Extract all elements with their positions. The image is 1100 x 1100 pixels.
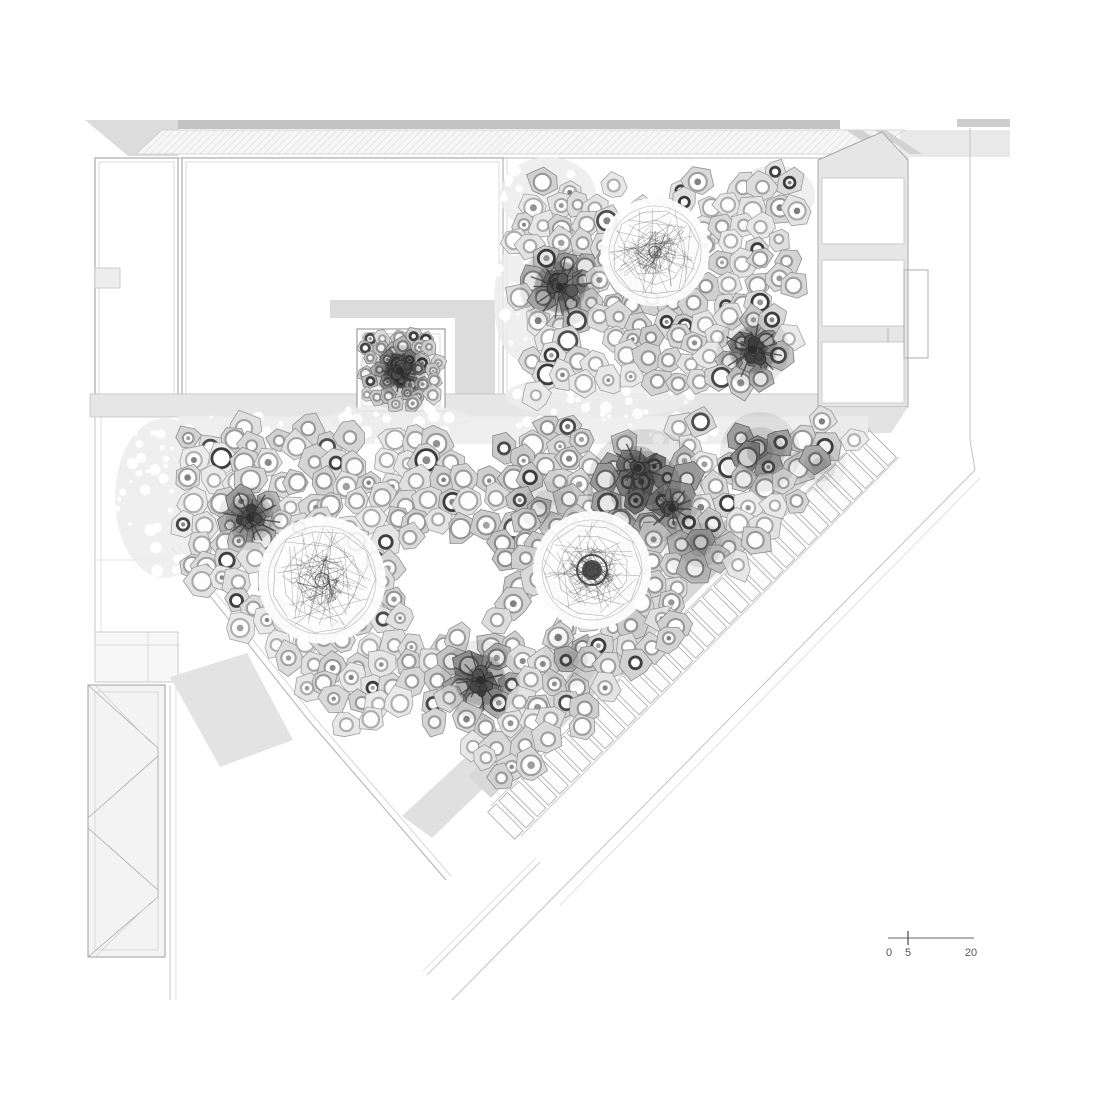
canopy-oculus — [363, 711, 379, 727]
dapple-dot — [128, 523, 132, 527]
canopy-oculus — [403, 531, 416, 544]
canopy-oculus — [709, 479, 723, 493]
tree-pod — [479, 684, 487, 692]
tree-pod — [755, 352, 763, 360]
canopy-oculus — [732, 559, 744, 571]
dapple-dot — [127, 458, 138, 469]
oculus-dot — [558, 240, 564, 246]
dapple-dot — [382, 414, 391, 423]
canopy-oculus — [770, 501, 780, 511]
dapple-dot — [280, 423, 284, 427]
tree-pod — [404, 362, 411, 369]
dapple-dot — [567, 170, 576, 179]
canopy-oculus — [340, 718, 353, 731]
canopy-oculus — [722, 277, 736, 291]
tree-pod — [247, 504, 256, 513]
tree-pod — [557, 273, 568, 284]
dapple-dot — [624, 414, 628, 418]
tree-trunk — [246, 514, 254, 522]
oculus-dot — [579, 437, 584, 442]
dapple-dot — [500, 194, 508, 202]
dapple-dot — [516, 422, 522, 428]
canopy-oculus — [450, 630, 466, 646]
canopy-oculus — [220, 553, 235, 568]
oculus-dot — [371, 686, 375, 690]
oculus-dot — [379, 662, 384, 667]
canopy-oculus — [208, 474, 221, 487]
dapple-dot — [210, 416, 213, 419]
dapple-dot — [170, 489, 175, 494]
canopy-oculus — [289, 474, 305, 490]
dapple-dot — [159, 473, 169, 483]
oculus-dot — [422, 456, 430, 464]
canopy-oculus — [687, 296, 701, 310]
dapple-dot — [629, 424, 633, 428]
oculus-dot — [332, 697, 336, 701]
oculus-dot — [566, 456, 572, 462]
oculus-dot — [596, 643, 601, 648]
canopy-oculus — [429, 716, 441, 728]
dapple-dot — [263, 426, 272, 435]
canopy-oculus — [593, 310, 606, 323]
wing-room-3 — [822, 342, 904, 403]
canopy-oculus — [747, 532, 764, 549]
nest-swirl — [533, 511, 651, 629]
walkway-corner-line-2 — [423, 858, 536, 971]
dapple-dot — [684, 400, 688, 404]
canopy-oculus — [531, 390, 541, 400]
canopy-small-courtyard — [357, 327, 447, 411]
dapple-dot — [444, 412, 455, 423]
dapple-dot — [512, 389, 522, 399]
canopy-oculus — [459, 492, 477, 510]
wing-room-2 — [822, 260, 904, 326]
dapple-dot — [522, 416, 533, 427]
oculus-dot — [487, 478, 492, 483]
top-edge-bar-right — [957, 119, 1010, 127]
canopy-oculus — [541, 421, 554, 434]
canopy-oculus — [614, 312, 624, 322]
oculus-dot — [409, 645, 413, 649]
oculus-dot — [305, 686, 310, 691]
roof-building — [88, 685, 165, 957]
canopy-oculus — [672, 377, 685, 390]
interior-wall-l-side — [455, 318, 495, 402]
dapple-dot — [516, 312, 519, 315]
canopy-oculus — [538, 220, 549, 231]
room-left-tab — [95, 268, 120, 288]
dapple-dot — [581, 403, 590, 412]
tree-pod — [245, 523, 251, 529]
canopy-oculus — [700, 280, 713, 293]
oculus-dot — [745, 505, 750, 510]
dapple-dot — [373, 411, 379, 417]
oculus-dot — [692, 340, 697, 345]
canopy-oculus — [771, 167, 780, 176]
canopy-oculus — [791, 495, 803, 507]
dapple-dot — [504, 174, 513, 183]
dapple-dot — [499, 309, 511, 321]
dapple-dot — [523, 337, 527, 341]
oculus-dot — [265, 459, 272, 466]
canopy-oculus — [379, 536, 392, 549]
dapple-dot — [502, 191, 506, 195]
canopy-oculus — [651, 375, 664, 388]
dapple-dot — [600, 402, 612, 414]
dapple-dot — [345, 406, 351, 412]
dapple-dot — [115, 506, 121, 512]
canopy-oculus — [724, 235, 737, 248]
scale-bar-label: 0 — [886, 947, 892, 959]
dapple-dot — [625, 397, 633, 405]
oculus-dot — [559, 203, 564, 208]
scale-bar-label: 20 — [965, 947, 977, 959]
oculus-dot — [508, 720, 514, 726]
oculus-dot — [483, 522, 490, 529]
oculus-dot — [391, 596, 397, 602]
oculus-dot — [186, 436, 190, 440]
canopy-oculus — [721, 198, 735, 212]
canopy-oculus — [380, 453, 394, 467]
dapple-dot — [643, 409, 648, 414]
canopy-shade-blob — [747, 439, 773, 465]
dapple-dot — [364, 428, 369, 433]
oculus-dot — [558, 445, 562, 449]
canopy-shade-blob — [561, 651, 579, 669]
oculus-dot — [366, 481, 371, 486]
canopy-oculus — [285, 502, 297, 514]
canopy-shade-blob — [688, 533, 712, 557]
canopy-oculus — [344, 431, 357, 444]
canopy-oculus — [786, 278, 802, 294]
canopy-oculus — [192, 572, 211, 591]
canopy-oculus — [316, 473, 331, 488]
oculus-dot — [757, 299, 763, 305]
dapple-dot — [586, 402, 589, 405]
oculus-dot — [520, 658, 526, 664]
canopy-oculus — [534, 174, 551, 191]
interior-wall-l-top — [330, 300, 495, 318]
canopy-oculus — [498, 443, 509, 454]
top-edge-bar — [178, 120, 840, 129]
tree-trunk — [634, 464, 642, 472]
oculus-dot — [667, 636, 672, 641]
canopy-oculus — [184, 494, 202, 512]
canopy-oculus — [601, 659, 616, 674]
dapple-dot — [149, 464, 160, 475]
dapple-dot — [130, 480, 133, 483]
canopy-oculus — [274, 436, 284, 446]
canopy-oculus — [479, 721, 493, 735]
site-plan-svg: III0520 — [0, 0, 1100, 1100]
room-main — [182, 158, 503, 402]
oculus-dot — [509, 765, 514, 770]
dapple-dot — [495, 265, 503, 273]
scale-bar: 0520 — [886, 931, 977, 959]
dapple-dot — [153, 430, 159, 436]
oculus-dot — [565, 424, 570, 429]
canopy-oculus — [774, 235, 783, 244]
dapple-dot — [508, 340, 513, 345]
nest-swirl — [601, 198, 710, 307]
walkway-corner-line — [427, 862, 540, 975]
oculus-dot — [720, 260, 724, 264]
oculus-dot — [433, 440, 440, 447]
oculus-dot — [603, 685, 608, 690]
nest-swirl — [258, 516, 385, 643]
canopy-oculus — [391, 695, 408, 712]
left-stair-block — [95, 632, 178, 682]
hatched-roof-band — [136, 130, 905, 154]
dapple-dot — [153, 523, 162, 532]
road-edge-right — [970, 128, 975, 470]
oculus-dot — [265, 618, 270, 623]
tree-trunk — [668, 504, 676, 512]
canopy-oculus — [608, 180, 620, 192]
dapple-dot — [151, 565, 163, 577]
dapple-dot — [622, 387, 631, 396]
canopy-oculus — [541, 732, 555, 746]
dapple-dot — [632, 409, 643, 420]
dapple-dot — [181, 554, 185, 558]
oculus-dot — [606, 378, 610, 382]
oculus-dot — [629, 375, 633, 379]
dapple-dot — [140, 485, 151, 496]
canopy-oculus — [386, 431, 405, 450]
oculus-dot — [441, 478, 446, 483]
tree-pod — [566, 285, 578, 297]
canopy-oculus — [406, 675, 419, 688]
canopy-oculus — [402, 655, 415, 668]
canopy-oculus — [693, 414, 709, 430]
canopy-oculus — [309, 456, 321, 468]
oculus-dot — [191, 457, 197, 463]
canopy-oculus — [363, 510, 380, 527]
wing-room-1 — [822, 178, 904, 244]
dapple-dot — [170, 447, 174, 451]
canopy-oculus — [520, 552, 532, 564]
canopy-oculus — [577, 237, 589, 249]
oculus-dot — [522, 223, 526, 227]
oculus-dot — [530, 204, 537, 211]
canopy-oculus — [721, 496, 735, 510]
canopy-oculus — [625, 619, 637, 631]
dapple-dot — [134, 431, 138, 435]
canopy-oculus — [496, 773, 507, 784]
oculus-dot — [181, 522, 185, 526]
oculus-dot — [237, 625, 244, 632]
canopy-oculus — [672, 421, 686, 435]
oculus-dot — [510, 600, 517, 607]
oculus-dot — [398, 616, 402, 620]
scale-bar-label: 5 — [905, 947, 911, 959]
canopy-oculus — [662, 354, 675, 367]
oculus-dot — [788, 181, 792, 185]
tree-trunk — [749, 346, 757, 354]
canopy-oculus — [642, 351, 656, 365]
oculus-dot — [527, 761, 535, 769]
canopy-oculus — [194, 537, 210, 553]
dapple-dot — [607, 415, 611, 419]
oculus-dot — [694, 179, 701, 186]
tree-pod — [757, 342, 764, 349]
canopy-oculus — [374, 489, 391, 506]
dapple-dot — [135, 440, 143, 448]
tree-trunk — [556, 283, 564, 291]
canopy-oculus — [573, 200, 583, 210]
dapple-dot — [550, 408, 557, 415]
canopy-oculus — [756, 181, 769, 194]
canopy-oculus — [491, 614, 504, 627]
canopy-shade-blob — [811, 457, 828, 474]
canopy-oculus — [578, 702, 592, 716]
canopy-oculus — [574, 718, 591, 735]
dapple-dot — [163, 456, 169, 462]
oculus-dot — [349, 675, 354, 680]
oculus-dot — [330, 665, 336, 671]
canopy-oculus — [575, 375, 592, 392]
oculus-dot — [369, 337, 372, 340]
canopy-oculus — [301, 422, 315, 436]
dapple-dot — [119, 489, 126, 496]
dapple-dot — [509, 165, 520, 176]
canopy-oculus — [524, 673, 538, 687]
canopy-oculus — [754, 221, 766, 233]
canopy-oculus — [409, 474, 424, 489]
dapple-dot — [117, 497, 121, 501]
dapple-dot — [575, 397, 581, 403]
canopy-oculus — [646, 332, 656, 342]
oculus-dot — [522, 459, 526, 463]
oculus-dot — [794, 208, 801, 215]
canopy-oculus — [753, 252, 767, 266]
canopy-oculus — [330, 457, 342, 469]
canopy-oculus — [420, 492, 437, 509]
dapple-dot — [164, 464, 168, 468]
oculus-dot — [665, 320, 669, 324]
canopy-oculus — [346, 458, 363, 475]
canopy-oculus — [489, 491, 504, 506]
canopy-oculus — [349, 493, 364, 508]
dapple-dot — [145, 469, 149, 473]
canopy-oculus — [693, 375, 706, 388]
canopy-oculus — [481, 752, 492, 763]
canopy-oculus — [455, 471, 471, 487]
canopy-oculus — [232, 575, 245, 588]
oculus-dot — [343, 483, 350, 490]
canopy-oculus — [432, 513, 444, 525]
canopy-oculus — [630, 657, 642, 669]
canopy-oculus — [848, 434, 860, 446]
oculus-dot — [549, 353, 554, 358]
dapple-dot — [516, 185, 523, 192]
dapple-dot — [136, 470, 143, 477]
oculus-dot — [560, 373, 565, 378]
canopy-oculus — [498, 551, 513, 566]
site-plan: III0520 — [0, 0, 1100, 1100]
dapple-dot — [172, 566, 181, 575]
canopy-oculus — [703, 350, 716, 363]
canopy-oculus — [451, 519, 470, 538]
oculus-dot — [286, 655, 291, 660]
tree-trunk — [476, 676, 484, 684]
dapple-dot — [496, 272, 500, 276]
tree-trunk — [396, 367, 404, 375]
ramp-band — [170, 653, 293, 767]
dapple-dot — [150, 542, 162, 554]
oculus-dot — [819, 418, 825, 424]
canopy-oculus — [212, 449, 231, 468]
dapple-dot — [168, 508, 173, 513]
oculus-dot — [184, 474, 191, 481]
tree-pod — [253, 514, 262, 523]
oculus-dot — [701, 461, 707, 467]
dapple-dot — [567, 395, 575, 403]
dapple-dot — [160, 445, 165, 450]
canopy-shade-blob — [535, 490, 555, 510]
